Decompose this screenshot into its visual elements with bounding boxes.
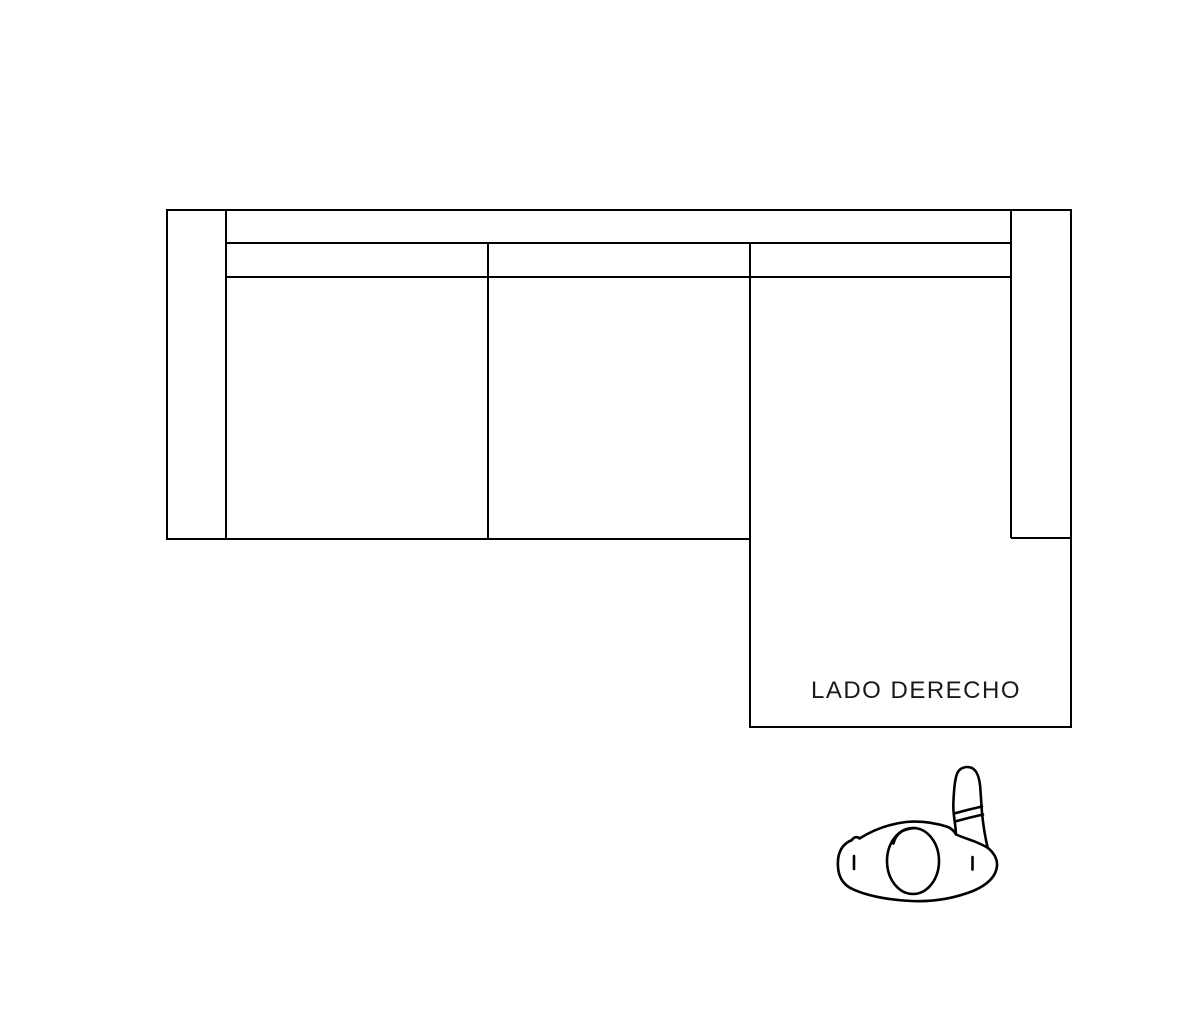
sofa-outline	[167, 210, 1071, 727]
diagram-canvas: LADO DERECHO	[0, 0, 1200, 1028]
diagram-page: LADO DERECHO	[0, 0, 1200, 1028]
chaise-label: LADO DERECHO	[811, 677, 1021, 704]
person-top-view-icon	[838, 767, 997, 901]
sofa-plan	[167, 210, 1071, 727]
